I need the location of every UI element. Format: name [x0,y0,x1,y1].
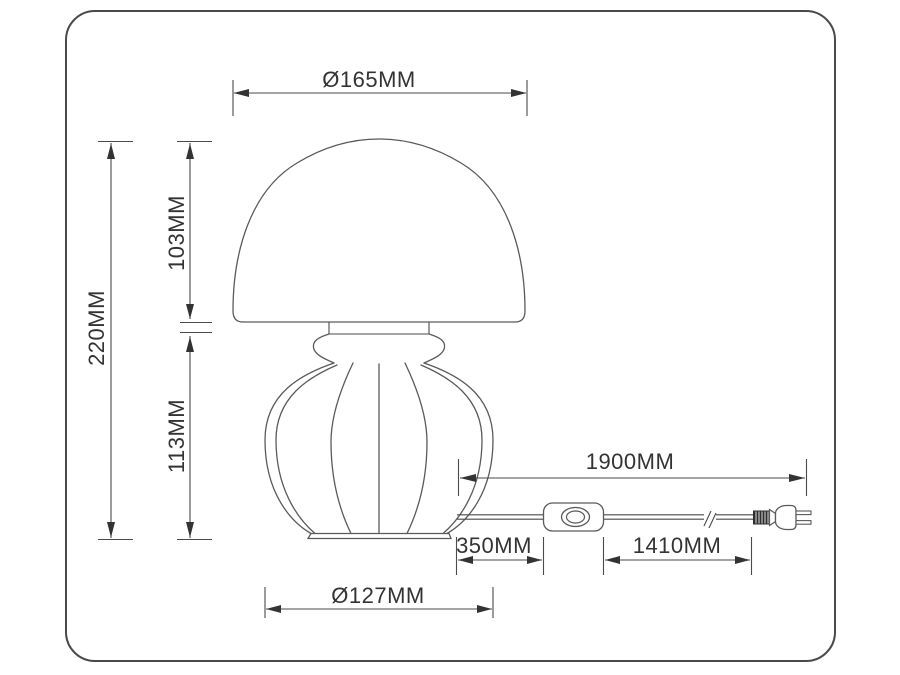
power-plug [753,506,811,530]
arrow-left-icon [234,89,250,97]
dim-label-base-height: 113MM [166,399,188,473]
lamp-technical-drawing [0,0,900,675]
arrow-up-icon [107,144,115,160]
body-outer-right [424,363,493,534]
arrow-right-icon [511,89,527,97]
arrow-right-icon [789,474,805,482]
power-cord [457,509,753,528]
lamp-base [265,334,493,539]
arrow-right-icon [477,605,492,613]
arrow-right-icon [735,556,750,564]
collar-right [424,334,445,363]
dim-label-shade-diameter: Ø165MM [322,69,415,91]
inline-switch [544,503,604,531]
dim-label-cord-to-switch: 350MM [456,535,532,557]
cord-segment-2 [603,515,753,519]
lamp-shade [233,139,525,334]
arrow-left-icon [460,474,476,482]
body-outer-left [265,363,334,534]
collar-left [313,334,334,363]
dim-label-cord-total: 1900MM [586,451,675,473]
plug-prong-top [796,511,811,515]
plug-body [776,506,797,530]
arrow-up-icon [186,337,194,353]
shade-neck [329,322,429,334]
arrow-up-icon [186,144,194,160]
plug-collar [770,510,776,526]
arrow-down-icon [107,522,115,538]
shade-outline [233,139,525,322]
dim-label-base-diameter: Ø127MM [331,585,424,607]
arrow-down-icon [186,304,194,319]
rib-right [405,363,427,534]
cord-segment-1 [457,515,543,519]
technical-drawing-canvas: Ø165MM 220MM 103MM 113MM 1900MM 350MM 14… [0,0,900,675]
base-plate [308,534,451,539]
plug-strain-relief [753,511,770,525]
dim-label-switch-to-plug: 1410MM [633,535,722,557]
arrow-down-icon [186,522,194,538]
dim-label-shade-height: 103MM [166,195,188,271]
arrow-left-icon [266,605,281,613]
arrow-left-icon [605,556,620,564]
plug-prong-bottom [796,521,811,525]
rib-left [331,363,353,534]
dim-label-total-height: 220MM [86,290,108,366]
